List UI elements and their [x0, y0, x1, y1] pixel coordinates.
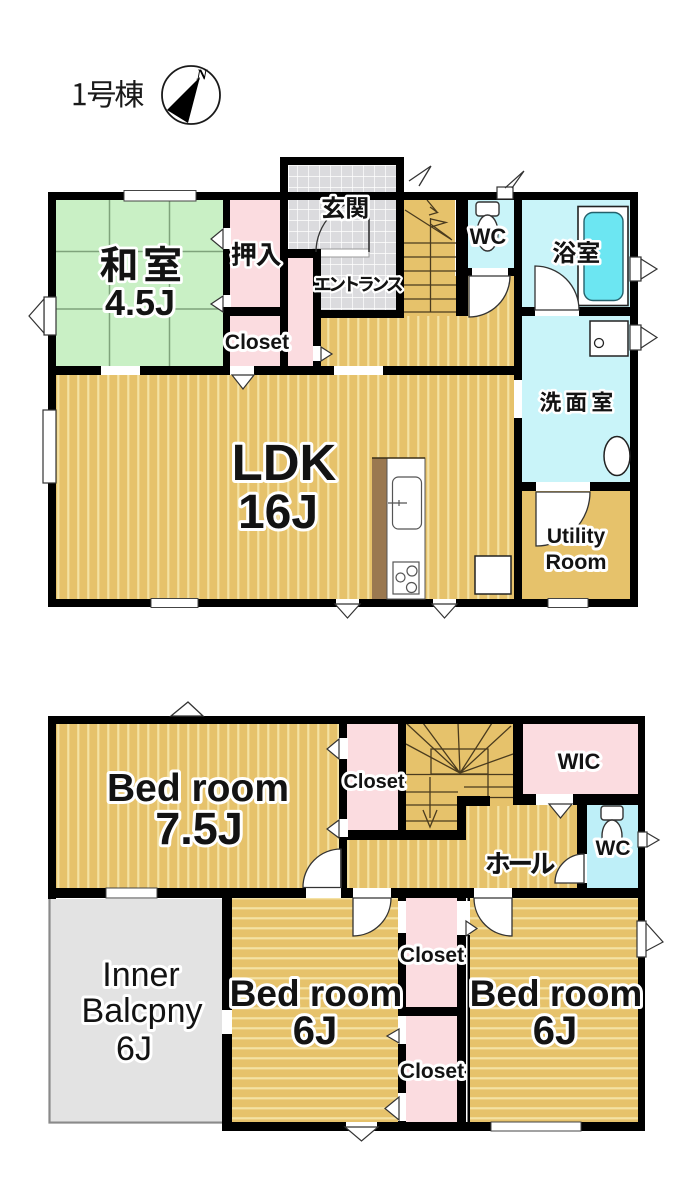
- svg-text:Bed room: Bed room: [470, 973, 643, 1014]
- svg-text:Balcpny: Balcpny: [82, 992, 203, 1030]
- svg-text:Bed room: Bed room: [230, 973, 403, 1014]
- svg-text:Room: Room: [546, 550, 607, 574]
- svg-text:LDK: LDK: [232, 434, 337, 491]
- svg-text:Inner: Inner: [102, 956, 180, 994]
- svg-text:6J: 6J: [533, 1009, 578, 1053]
- svg-text:7.5J: 7.5J: [155, 803, 243, 854]
- svg-text:6J: 6J: [293, 1009, 338, 1053]
- svg-text:Closet: Closet: [225, 331, 289, 354]
- svg-text:Closet: Closet: [400, 944, 464, 967]
- svg-text:Closet: Closet: [343, 771, 404, 793]
- svg-text:Closet: Closet: [400, 1060, 464, 1083]
- svg-text:4.5J: 4.5J: [105, 282, 175, 323]
- svg-text:16J: 16J: [238, 486, 318, 539]
- svg-text:WC: WC: [596, 837, 631, 860]
- svg-text:Utility: Utility: [547, 525, 606, 548]
- svg-text:WIC: WIC: [558, 749, 601, 774]
- svg-text:WC: WC: [470, 224, 507, 249]
- svg-text:6J: 6J: [116, 1030, 152, 1068]
